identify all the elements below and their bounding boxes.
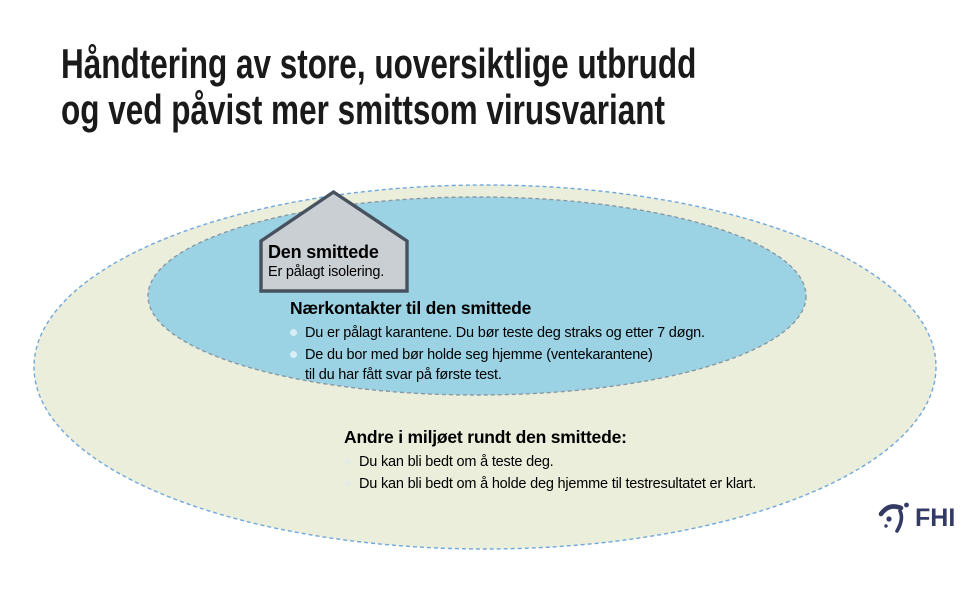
inner-zone-bullet-1: Du er pålagt karantene. Du bør teste deg…: [305, 323, 705, 343]
house-subtitle: Er pålagt isolering.: [268, 263, 404, 282]
fhi-logo: FHI: [878, 500, 955, 536]
list-item: Du er pålagt karantene. Du bør teste deg…: [290, 323, 770, 343]
list-item: Du kan bli bedt om å holde deg hjemme ti…: [344, 474, 884, 494]
outer-zone-bullet-2: Du kan bli bedt om å holde deg hjemme ti…: [359, 474, 756, 494]
fhi-logo-text: FHI: [915, 501, 955, 535]
inner-zone-bullet-2: De du bor med bør holde seg hjemme (vent…: [305, 345, 653, 385]
outer-zone-block: Andre i miljøet rundt den smittede: Du k…: [344, 426, 884, 496]
outer-zone-heading: Andre i miljøet rundt den smittede:: [344, 426, 884, 448]
bullet-icon: [290, 351, 297, 358]
page-title: Håndtering av store, uoversiktlige utbru…: [61, 41, 696, 133]
bullet-icon: [290, 329, 297, 336]
inner-zone-block: Nærkontakter til den smittede Du er påla…: [290, 297, 770, 387]
list-item: Du kan bli bedt om å teste deg.: [344, 452, 884, 472]
slide-canvas: { "title": { "line1": "Håndtering av sto…: [0, 0, 970, 589]
page-title-line1: Håndtering av store, uoversiktlige utbru…: [61, 41, 696, 87]
bullet-icon: [344, 480, 351, 487]
house-title: Den smittede: [268, 241, 404, 263]
fhi-figure-icon: [878, 500, 912, 536]
list-item: De du bor med bør holde seg hjemme (vent…: [290, 345, 770, 385]
bullet-icon: [344, 458, 351, 465]
outer-zone-bullet-1: Du kan bli bedt om å teste deg.: [359, 452, 554, 472]
house-label: Den smittede Er pålagt isolering.: [268, 241, 404, 282]
page-title-line2: og ved påvist mer smittsom virusvariant: [61, 87, 696, 133]
inner-zone-heading: Nærkontakter til den smittede: [290, 297, 770, 319]
